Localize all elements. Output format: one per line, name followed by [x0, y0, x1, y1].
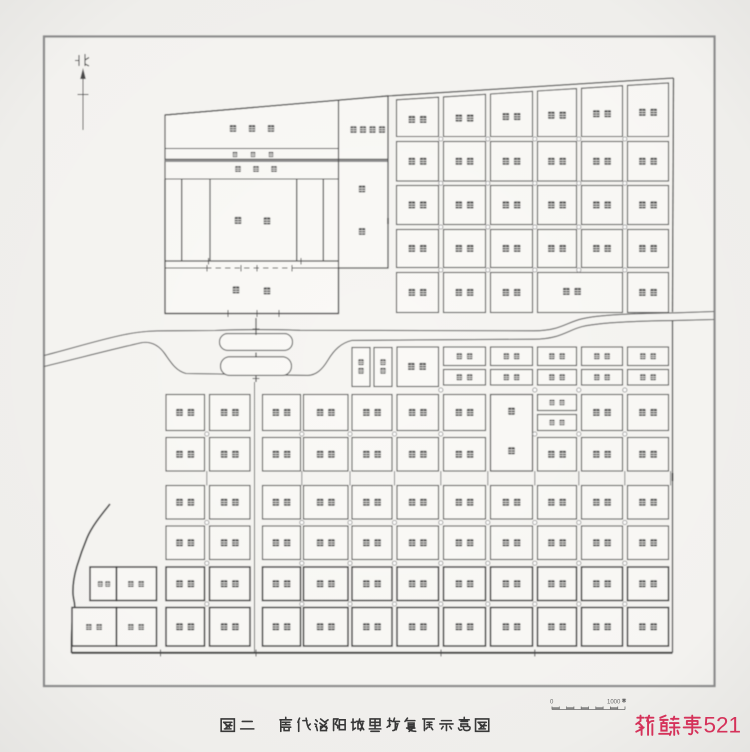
svg-text:521: 521 [704, 713, 742, 738]
svg-text:1000: 1000 [607, 700, 621, 706]
